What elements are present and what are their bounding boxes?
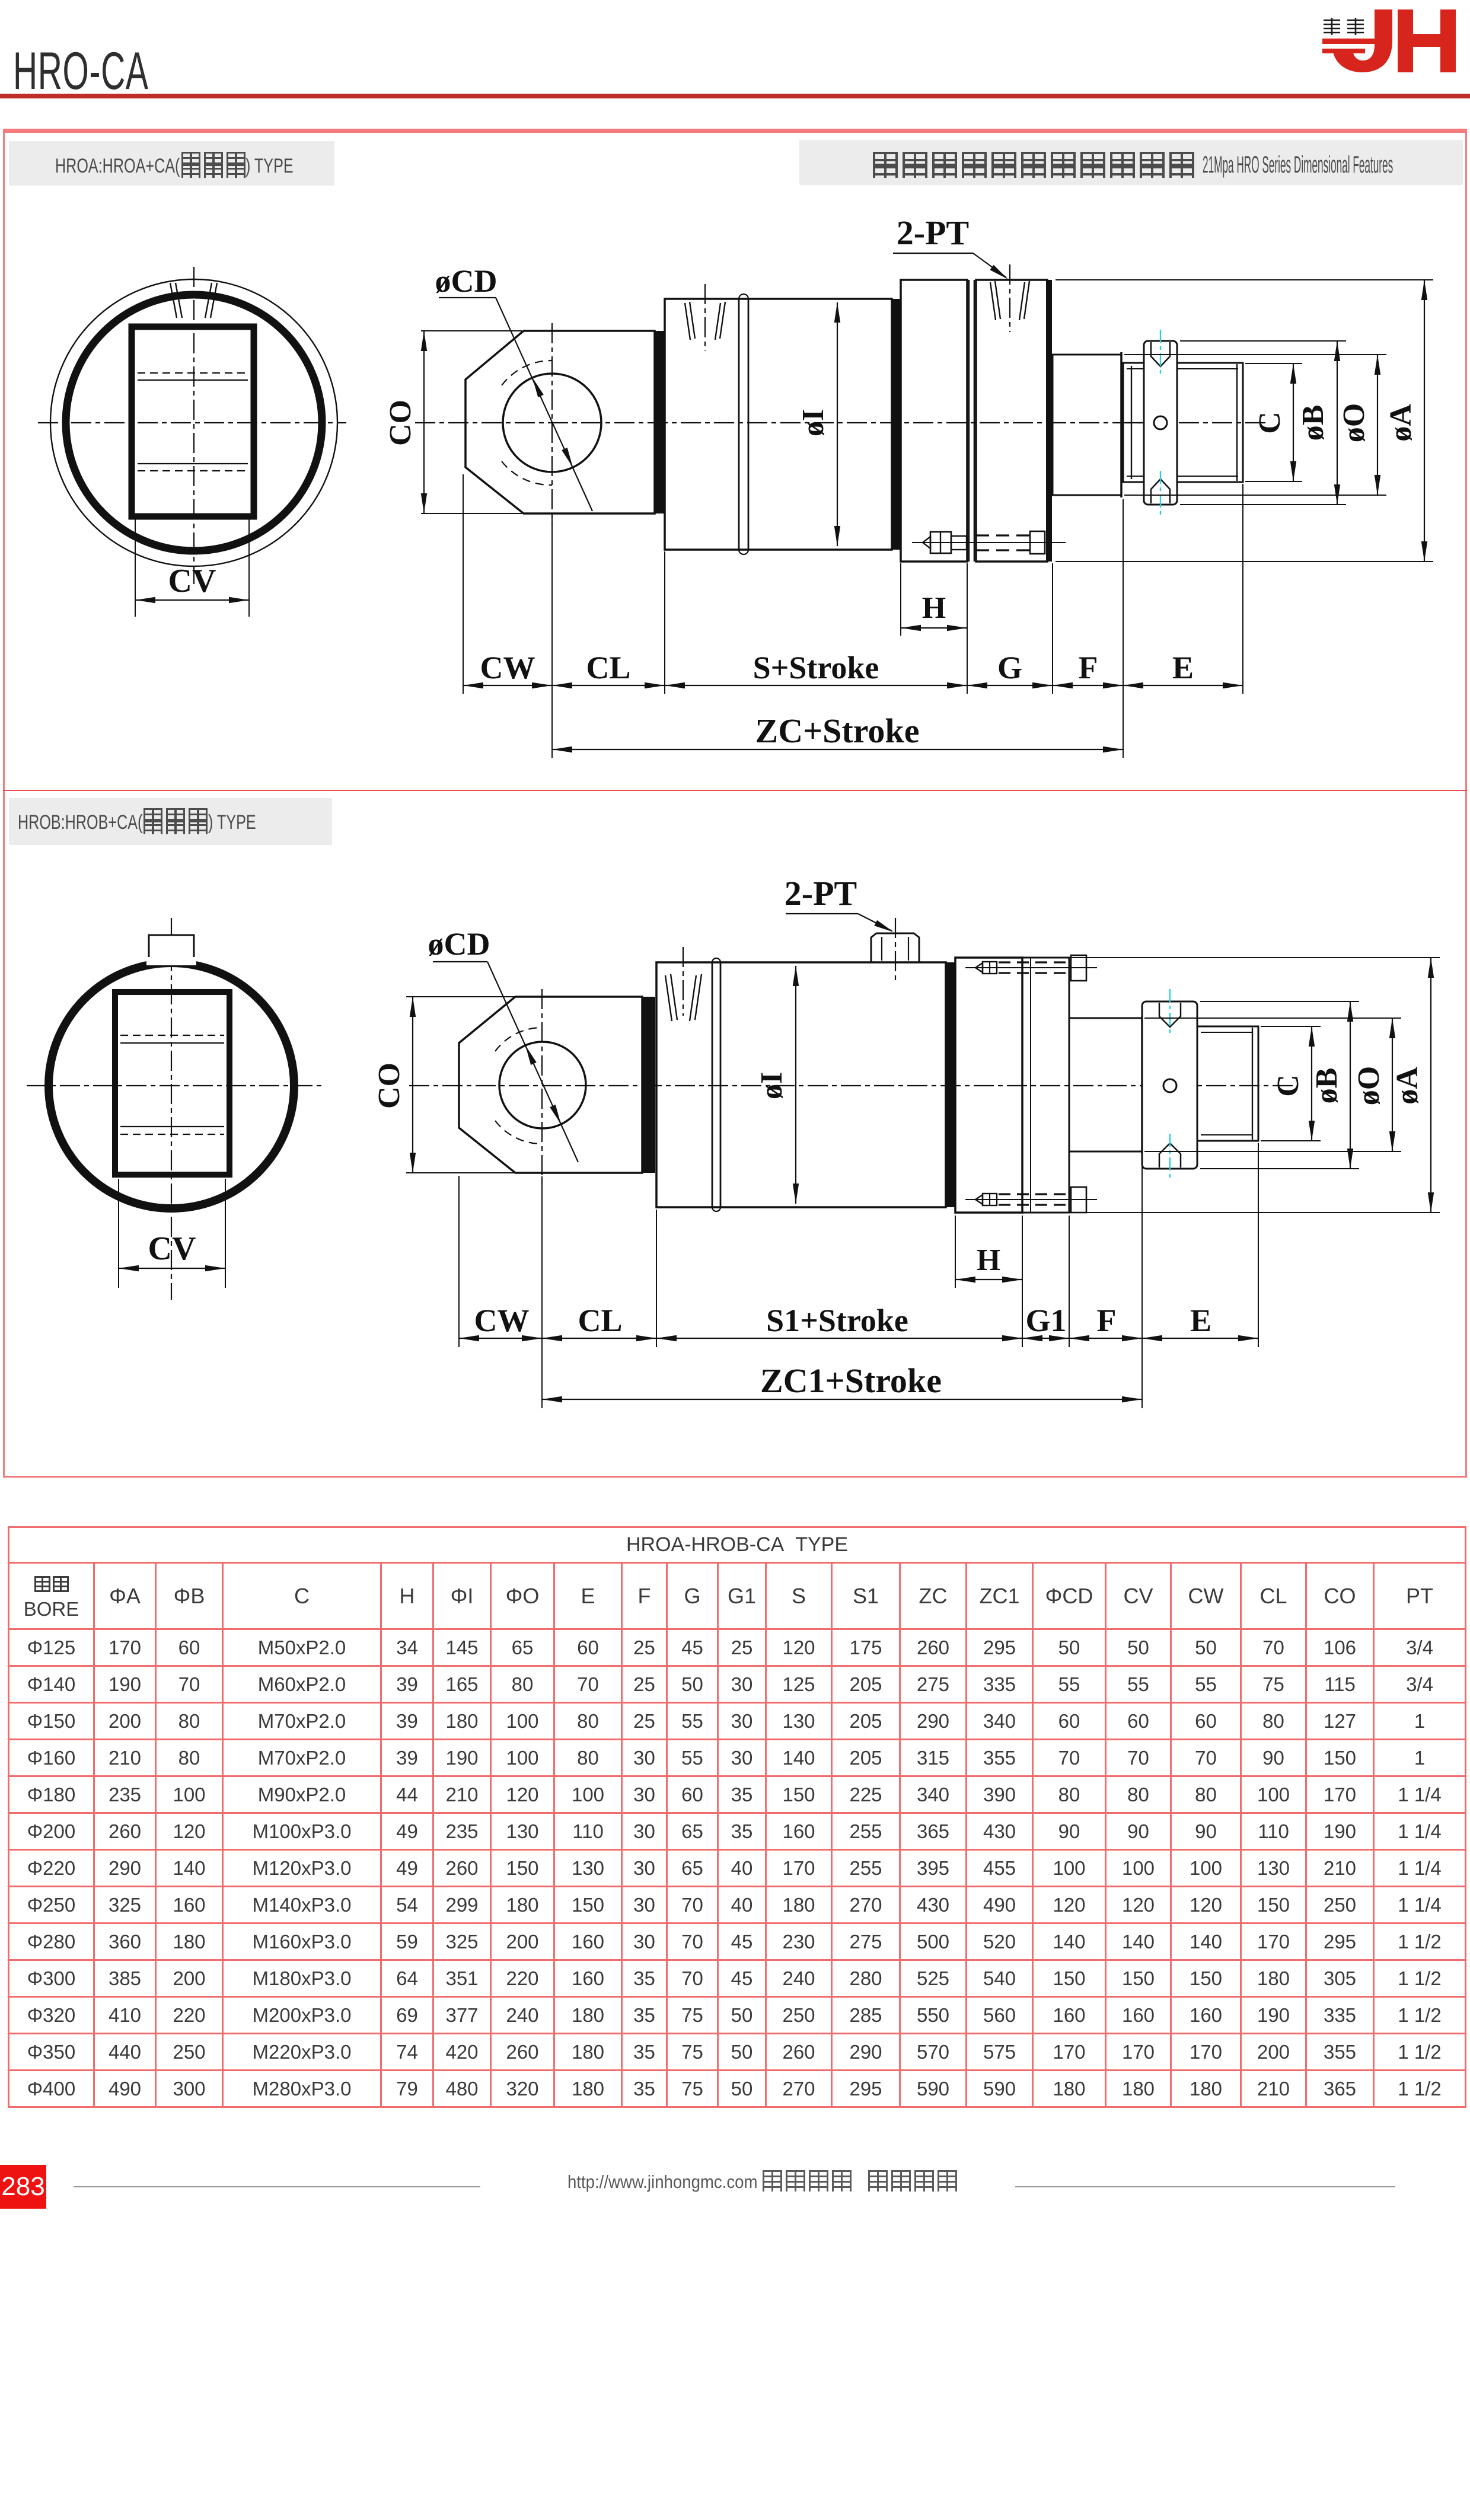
svg-text:øCD: øCD — [435, 263, 498, 299]
svg-text:CW: CW — [480, 650, 535, 685]
svg-text:øI: øI — [796, 409, 830, 436]
svg-text:øA: øA — [1384, 404, 1418, 442]
svg-text:ZC+Stroke: ZC+Stroke — [755, 712, 920, 750]
svg-text:S+Stroke: S+Stroke — [753, 650, 879, 685]
svg-text:2-PT: 2-PT — [785, 874, 857, 913]
svg-text:CO: CO — [384, 400, 417, 446]
svg-text:G: G — [997, 650, 1022, 685]
svg-text:G1: G1 — [1025, 1303, 1066, 1338]
svg-text:H: H — [977, 1243, 1000, 1277]
svg-text:C: C — [1253, 412, 1287, 434]
svg-text:CV: CV — [168, 563, 216, 599]
svg-text:F: F — [1097, 1303, 1117, 1338]
svg-text:H: H — [922, 591, 946, 625]
svg-text:øI: øI — [755, 1072, 789, 1099]
svg-text:øB: øB — [1310, 1068, 1344, 1104]
svg-text:2-PT: 2-PT — [897, 213, 969, 252]
svg-text:CL: CL — [578, 1303, 622, 1338]
svg-text:ZC1+Stroke: ZC1+Stroke — [760, 1361, 942, 1400]
svg-text:CO: CO — [372, 1063, 406, 1109]
svg-text:øCD: øCD — [428, 926, 490, 962]
svg-text:C: C — [1271, 1074, 1305, 1097]
svg-text:CV: CV — [148, 1230, 196, 1267]
svg-text:CL: CL — [586, 650, 630, 685]
svg-text:øO: øO — [1352, 1066, 1386, 1105]
svg-text:E: E — [1172, 650, 1194, 685]
svg-text:E: E — [1190, 1303, 1211, 1338]
svg-text:øA: øA — [1391, 1067, 1424, 1105]
svg-text:øB: øB — [1296, 405, 1330, 441]
svg-text:CW: CW — [474, 1303, 530, 1338]
svg-text:øO: øO — [1337, 403, 1371, 442]
svg-text:S1+Stroke: S1+Stroke — [766, 1303, 908, 1338]
svg-text:F: F — [1079, 650, 1098, 685]
